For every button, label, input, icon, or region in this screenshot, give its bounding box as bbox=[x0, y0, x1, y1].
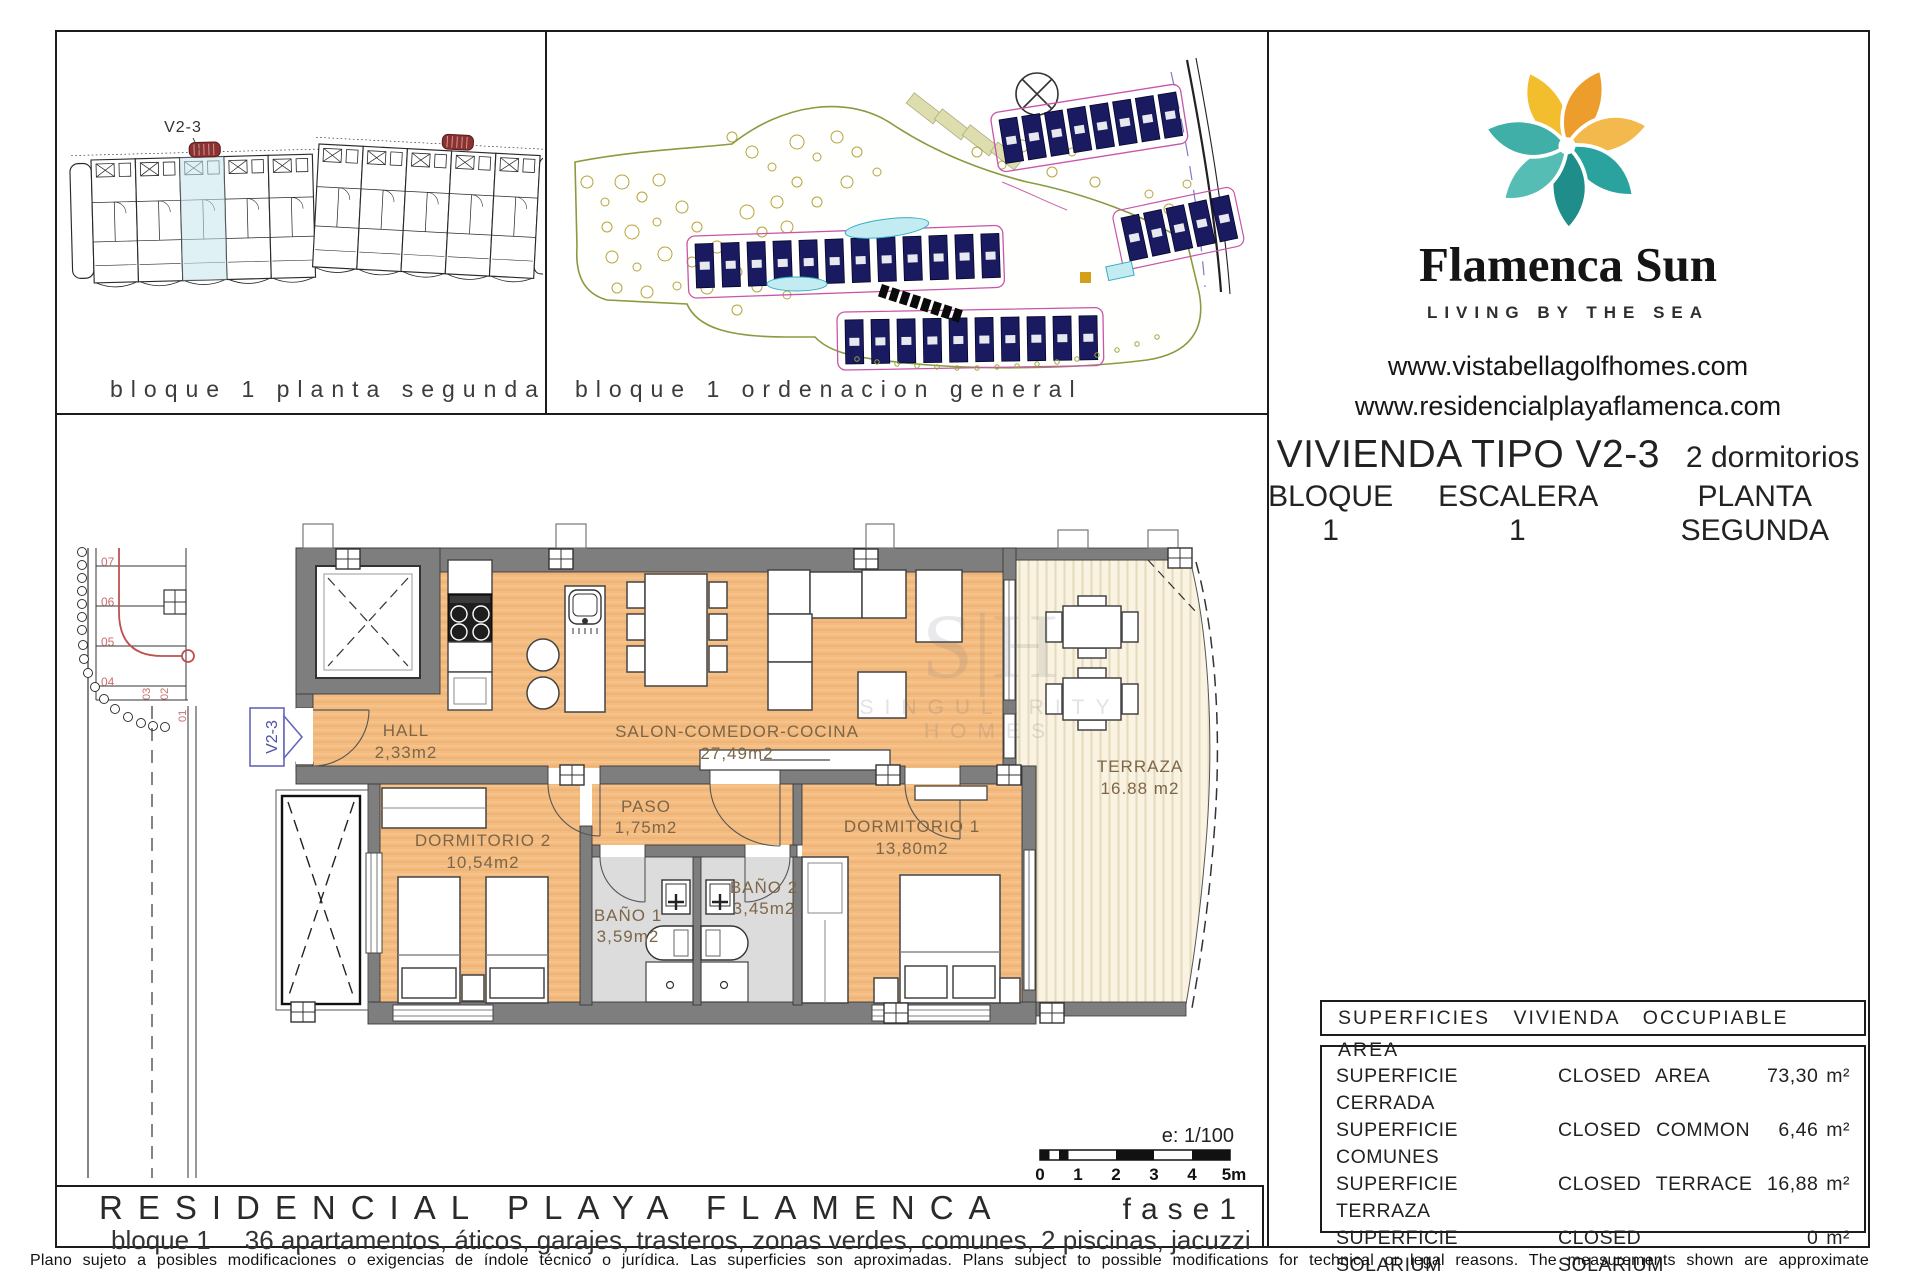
unit-tag: V2-3 bbox=[250, 708, 302, 766]
brand-tagline: LIVING BY THE SEA bbox=[1267, 303, 1869, 323]
unit-stair: ESCALERA 1 bbox=[1438, 480, 1596, 548]
patio-shaft bbox=[276, 790, 368, 1010]
areas-table-body: SUPERFICIE CERRADA CLOSED AREA 73,30 m² … bbox=[1320, 1045, 1866, 1233]
legal-disclaimer: Plano sujeto a posibles modificaciones o… bbox=[30, 1252, 1900, 1270]
site-plan-caption: bloque 1 ordenacion general bbox=[575, 376, 1083, 403]
svg-text:0: 0 bbox=[1035, 1165, 1044, 1184]
highlighted-unit bbox=[180, 157, 227, 281]
room-label-hall: HALL bbox=[383, 721, 430, 740]
dining-set bbox=[627, 574, 727, 686]
svg-text:2: 2 bbox=[1111, 1165, 1120, 1184]
title-block: RESIDENCIAL PLAYA FLAMENCA fase1 bloque … bbox=[55, 1185, 1264, 1248]
stair-detail: 07 06 05 04 03 02 01 bbox=[78, 548, 197, 1179]
areas-table-header: SUPERFICIES VIVIENDA OCCUPIABLE AREA bbox=[1320, 1000, 1866, 1036]
brand-name: Flamenca Sun bbox=[1267, 236, 1869, 293]
block-wing-left bbox=[69, 139, 325, 288]
svg-text:02: 02 bbox=[159, 688, 171, 700]
building-row-a bbox=[990, 83, 1189, 172]
svg-text:16.88 m2: 16.88 m2 bbox=[1101, 779, 1180, 798]
block-plan-drawing: V2-3 bbox=[57, 32, 543, 372]
block-label: bloque 1 bbox=[111, 1225, 211, 1255]
svg-text:1,75m2: 1,75m2 bbox=[615, 818, 678, 837]
table-row: SUPERFICIE CERRADA CLOSED AREA 73,30 m² bbox=[1336, 1063, 1852, 1117]
site-plan-drawing bbox=[547, 32, 1265, 372]
project-title: RESIDENCIAL PLAYA FLAMENCA bbox=[99, 1189, 1006, 1227]
svg-text:13,80m2: 13,80m2 bbox=[875, 839, 948, 858]
svg-text:1: 1 bbox=[1073, 1165, 1082, 1184]
svg-text:04: 04 bbox=[101, 675, 115, 689]
phase-label: fase1 bbox=[1123, 1193, 1246, 1227]
coffee-table bbox=[858, 672, 906, 718]
dorm1-furniture bbox=[802, 857, 1020, 1003]
brand-websites: www.vistabellagolfhomes.com www.residenc… bbox=[1267, 346, 1869, 426]
website-link-1: www.vistabellagolfhomes.com bbox=[1267, 346, 1869, 386]
nightstand bbox=[1000, 978, 1020, 1003]
unit-heading: VIVIENDA TIPO V2-3 2 dormitorios BLOQUE … bbox=[1267, 433, 1869, 548]
svg-text:3: 3 bbox=[1149, 1165, 1158, 1184]
svg-text:05: 05 bbox=[101, 635, 115, 649]
stool bbox=[527, 677, 559, 709]
room-label-paso: PASO bbox=[621, 797, 671, 816]
room-label-salon: SALON-COMEDOR-COCINA bbox=[615, 722, 859, 741]
stool bbox=[527, 639, 559, 671]
room-label-dorm1: DORMITORIO 1 bbox=[844, 817, 980, 836]
svg-text:4: 4 bbox=[1187, 1165, 1197, 1184]
svg-text:5m: 5m bbox=[1222, 1165, 1247, 1184]
nightstand bbox=[462, 975, 484, 1001]
unit-floor: PLANTA SEGUNDA bbox=[1641, 480, 1869, 548]
pillars bbox=[303, 524, 1178, 548]
elevator-shaft bbox=[296, 548, 440, 694]
website-link-2: www.residencialplayaflamenca.com bbox=[1267, 386, 1869, 426]
unit-bedrooms: 2 dormitorios bbox=[1686, 441, 1859, 475]
block-plan-caption: bloque 1 planta segunda bbox=[110, 376, 546, 403]
table-row: SUPERFICIE TERRAZA CLOSED TERRACE 16,88 … bbox=[1336, 1171, 1852, 1225]
plan-sheet: V2-3 bloque 1 planta segunda bbox=[0, 0, 1920, 1280]
room-label-bano2: BAÑO 2 bbox=[730, 878, 798, 897]
areas-table: SUPERFICIES VIVIENDA OCCUPIABLE AREA SUP… bbox=[1320, 1000, 1866, 1233]
scale-bar: e: 1/100 0 1 2 3 4 5m bbox=[1035, 1125, 1246, 1184]
unit-type-title: VIVIENDA TIPO V2-3 bbox=[1277, 433, 1660, 477]
room-label-bano1: BAÑO 1 bbox=[594, 906, 662, 925]
amenities-list: 36 apartamentos, áticos, garajes, traste… bbox=[245, 1225, 1251, 1255]
dining-table bbox=[645, 574, 707, 686]
svg-text:2,33m2: 2,33m2 bbox=[375, 743, 438, 762]
svg-text:01: 01 bbox=[177, 710, 189, 722]
svg-text:3,45m2: 3,45m2 bbox=[733, 899, 796, 918]
block-plan-unit-label: V2-3 bbox=[164, 119, 202, 136]
svg-text:e: 1/100: e: 1/100 bbox=[1162, 1125, 1234, 1147]
apartment-floorplan: 07 06 05 04 03 02 01 V2-3 HALL 2,33m2 SA… bbox=[55, 413, 1267, 1185]
table-row: SUPERFICIE COMUNES CLOSED COMMON 6,46 m² bbox=[1336, 1117, 1852, 1171]
svg-text:10,54m2: 10,54m2 bbox=[446, 853, 519, 872]
room-label-terraza: TERRAZA bbox=[1097, 757, 1183, 776]
svg-text:07: 07 bbox=[101, 555, 115, 569]
flamenca-sun-logo bbox=[1472, 52, 1662, 234]
svg-text:3,59m2: 3,59m2 bbox=[597, 927, 660, 946]
divider-right-column bbox=[1267, 30, 1269, 1248]
unit-block: BLOQUE 1 bbox=[1267, 480, 1394, 548]
svg-text:03: 03 bbox=[141, 688, 153, 700]
block-wing-right bbox=[309, 127, 543, 283]
room-label-dorm2: DORMITORIO 2 bbox=[415, 831, 551, 850]
svg-text:V2-3: V2-3 bbox=[264, 720, 281, 754]
stove bbox=[448, 594, 492, 642]
svg-text:06: 06 bbox=[101, 595, 115, 609]
svg-text:27,49m2: 27,49m2 bbox=[700, 744, 773, 763]
nightstand bbox=[874, 978, 898, 1003]
